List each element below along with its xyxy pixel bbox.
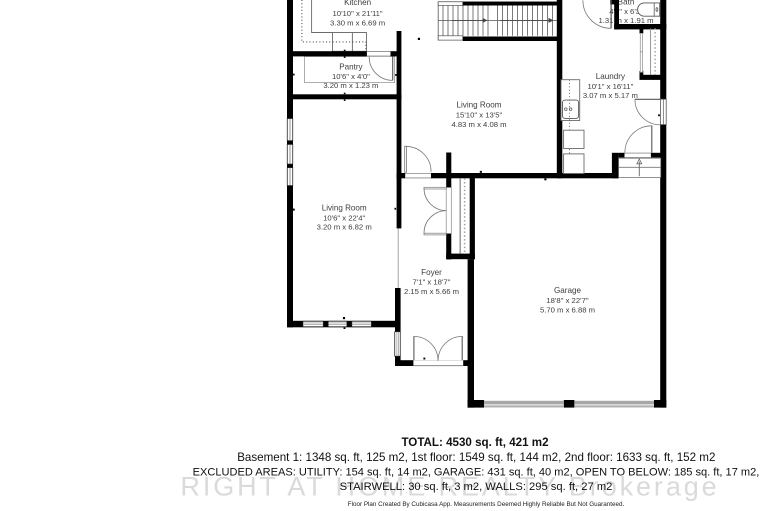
svg-text:3.07 m x 5.17 m: 3.07 m x 5.17 m [583,91,638,100]
svg-text:3.30 m x 6.69 m: 3.30 m x 6.69 m [330,18,385,27]
svg-text:Living Room: Living Room [322,204,367,213]
svg-text:STAIRWELL: 30 sq. ft, 3 m2, WA: STAIRWELL: 30 sq. ft, 3 m2, WALLS: 295 s… [340,481,613,493]
svg-text:TOTAL: 4530 sq. ft, 421 m2: TOTAL: 4530 sq. ft, 421 m2 [401,436,548,449]
svg-text:Foyer: Foyer [421,268,442,277]
svg-text:Floor Plan Created By Cubicasa: Floor Plan Created By Cubicasa App. Meas… [348,501,625,508]
svg-text:1.31 m x 1.91 m: 1.31 m x 1.91 m [598,16,653,25]
svg-text:15'10" x 13'5": 15'10" x 13'5" [456,110,503,119]
svg-text:Pantry: Pantry [339,63,363,72]
svg-text:EXCLUDED AREAS: UTILITY: 154 s: EXCLUDED AREAS: UTILITY: 154 sq. ft, 14 … [193,467,760,479]
svg-text:Laundry: Laundry [596,72,626,81]
svg-text:3.20 m x 6.82 m: 3.20 m x 6.82 m [317,223,372,232]
svg-text:Garage: Garage [554,286,581,295]
svg-text:18'8" x 22'7": 18'8" x 22'7" [546,296,588,305]
svg-text:Living Room: Living Room [457,100,502,109]
svg-text:10'6" x 22'4": 10'6" x 22'4" [323,214,365,223]
svg-text:Bath: Bath [618,0,635,6]
svg-text:Basement 1: 1348 sq. ft, 125 m: Basement 1: 1348 sq. ft, 125 m2, 1st flo… [237,451,715,464]
svg-text:5.70 m x 6.88 m: 5.70 m x 6.88 m [540,306,595,315]
svg-text:10'1" x 16'11": 10'1" x 16'11" [587,82,633,91]
svg-text:7'1" x 18'7": 7'1" x 18'7" [413,278,451,287]
svg-text:10'6" x 4'0": 10'6" x 4'0" [332,72,370,81]
svg-text:4.83 m x 4.08 m: 4.83 m x 4.08 m [451,120,506,129]
svg-text:10'10" x 21'11": 10'10" x 21'11" [333,9,383,18]
svg-text:Kitchen: Kitchen [344,0,371,7]
svg-text:2.15 m x 5.66 m: 2.15 m x 5.66 m [404,287,459,296]
